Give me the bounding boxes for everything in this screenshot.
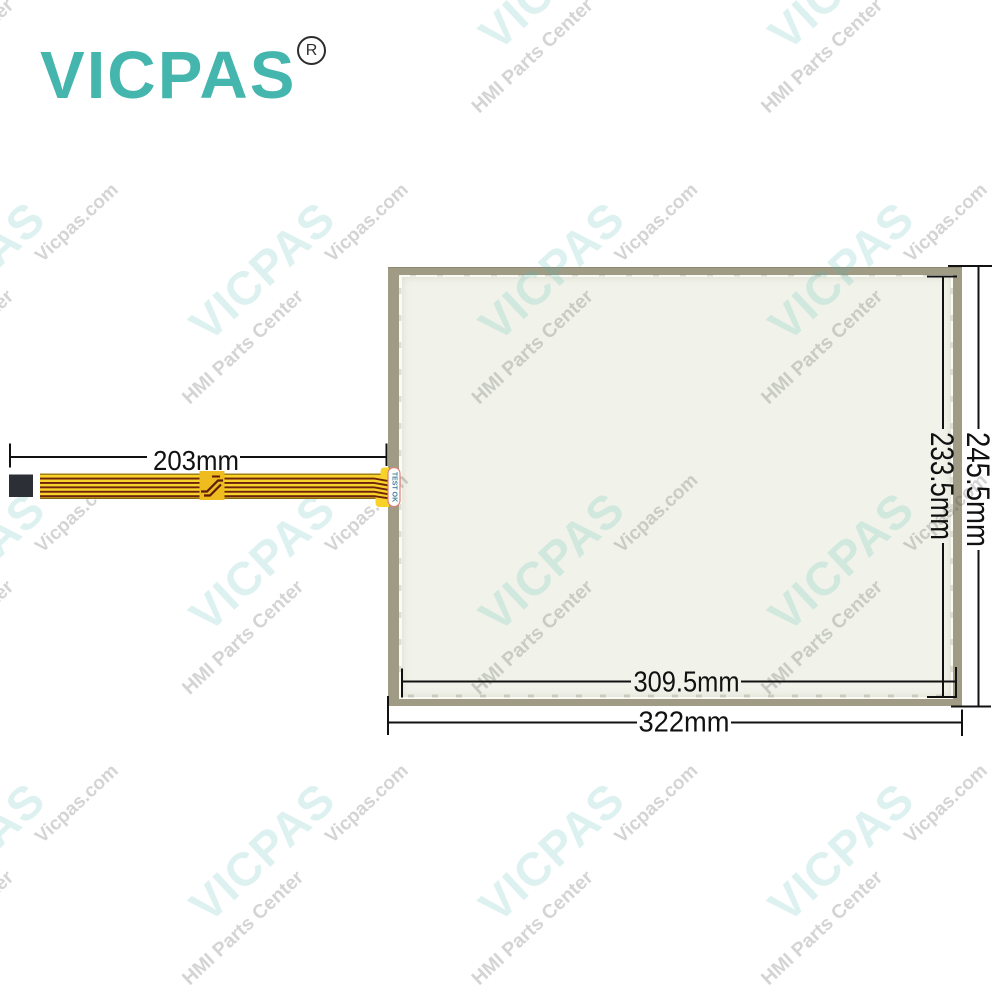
svg-text:309.5mm: 309.5mm: [634, 667, 740, 699]
svg-text:245.5mm: 245.5mm: [960, 432, 996, 547]
svg-text:322mm: 322mm: [639, 707, 730, 739]
svg-text:TEST OK: TEST OK: [391, 472, 398, 502]
svg-text:233.5mm: 233.5mm: [924, 432, 960, 540]
svg-text:203mm: 203mm: [153, 445, 239, 476]
